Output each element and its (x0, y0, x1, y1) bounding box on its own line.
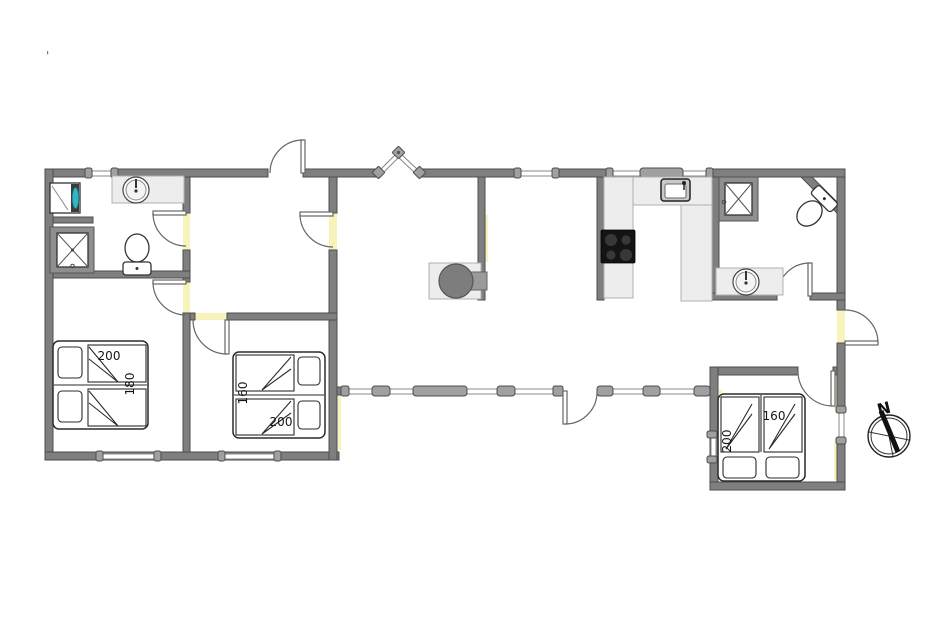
pillow (298, 401, 320, 429)
sink-counter-1 (112, 176, 184, 203)
hall-exterior-door (270, 140, 305, 173)
double-bed-middle: 160 200 (233, 352, 325, 438)
bed-length-label: 200 (720, 430, 734, 453)
washing-machine (50, 183, 80, 213)
wood-stove (429, 263, 487, 299)
compass-north-label: N (875, 398, 893, 420)
window-sill (413, 386, 467, 396)
bed-width-label: 180 (123, 373, 137, 396)
compass-north-indicator: N (868, 398, 910, 457)
shower-1 (50, 227, 94, 273)
double-bed-right: 160 200 (718, 394, 805, 481)
floor-plan-page: ' (0, 0, 930, 620)
bedroom-left-door (153, 280, 186, 315)
pillow (58, 391, 82, 422)
toilet-2 (790, 184, 839, 233)
bedroom-middle-door (193, 320, 229, 354)
shower-2 (719, 177, 758, 221)
pillow (723, 457, 756, 478)
bay-window (372, 146, 426, 179)
corner-tick-mark: ' (46, 49, 49, 63)
kitchen (601, 177, 712, 301)
kitchen-peninsula (681, 205, 712, 301)
bed-width-label: 160 (763, 409, 786, 423)
bathroom-2 (716, 177, 839, 295)
floor-plan-drawing: ' (0, 0, 930, 620)
toilet-1 (123, 234, 151, 275)
bathroom-1-door (153, 211, 186, 246)
double-bed-left: 200 180 (53, 341, 148, 429)
bed-length-label: 200 (98, 349, 121, 363)
cooktop (601, 230, 635, 263)
bed-width-label: 160 (236, 382, 250, 405)
terrace-door (563, 391, 597, 424)
bathroom-1 (50, 176, 184, 275)
main-entrance-door (845, 310, 878, 345)
duvet (88, 389, 146, 426)
bed-length-label: 200 (270, 415, 293, 429)
hall-living-room-door (300, 212, 333, 247)
kitchen-sink (661, 179, 690, 201)
pillow (766, 457, 799, 478)
pillow (58, 347, 82, 378)
sink-counter-2 (716, 268, 783, 295)
pillow (298, 357, 320, 385)
